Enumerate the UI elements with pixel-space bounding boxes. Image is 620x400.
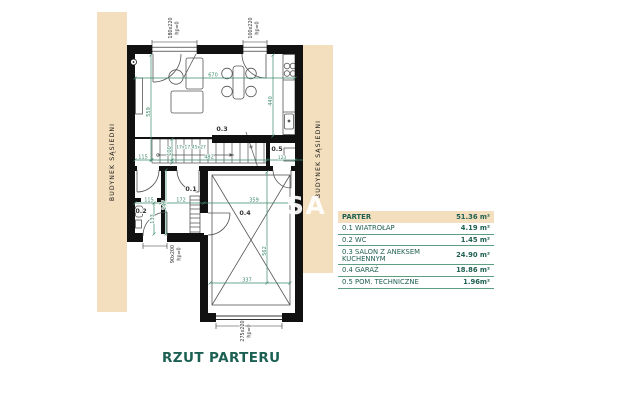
stair-flight-lower — [190, 196, 200, 234]
door-90-label: 90x200 — [170, 245, 176, 263]
kitchen-divider — [283, 80, 295, 112]
garage-275-label: 275x220 — [240, 320, 246, 341]
garage-275-hp: hp=0 — [247, 324, 253, 337]
room-label-0-3: 0.3 — [216, 125, 227, 133]
dim-562: 562 — [262, 246, 268, 256]
wall-wc — [135, 198, 141, 202]
window-180-label: 180x220 — [168, 17, 174, 38]
dim-559: 559 — [146, 107, 152, 117]
windows — [152, 45, 282, 320]
wall-bottom-left — [127, 233, 143, 242]
plan-title: RZUT PARTERU — [162, 350, 281, 366]
garage-door-panel — [216, 316, 282, 320]
room-label-0-1: 0.1 — [185, 185, 196, 193]
dim-359: 359 — [249, 198, 259, 204]
dining-chair — [246, 68, 257, 79]
walls — [127, 45, 303, 322]
boiler-symbol-dot — [133, 61, 135, 63]
dim-337: 337 — [242, 278, 252, 284]
legend-room-name: 0.1 WIATROŁAP — [342, 225, 395, 232]
door-garage-inner — [208, 213, 230, 235]
dim-115-top: 115 — [138, 155, 148, 161]
legend-row: 0.3 SALON Z ANEKSEM KUCHENNYM 24.90 m² — [338, 246, 494, 265]
window-opening — [243, 45, 267, 54]
dim-172: 172 — [176, 198, 186, 204]
legend-room-area: 1.96m² — [463, 279, 490, 286]
neighbor-strip-right: BUDYNEK SĄSIEDNI — [303, 45, 333, 273]
stair-flight-lower-treads — [190, 200, 200, 232]
dim-670: 670 — [208, 73, 218, 79]
garage-cross — [212, 175, 290, 305]
legend-room-area: 18.86 m² — [456, 267, 490, 274]
legend-row: 0.2 WC 1.45 m² — [338, 235, 494, 247]
legend-row: 0.5 POM. TECHNICZNE 1.96m² — [338, 277, 494, 289]
wall-garage-left — [200, 166, 208, 213]
dining-table — [233, 66, 244, 99]
door-90-hp: hp=0 — [177, 247, 183, 260]
sofa-chaise — [186, 58, 203, 89]
room-label-0-5: 0.5 — [271, 145, 282, 153]
wall-right — [295, 54, 303, 322]
window-100-hp: hp=0 — [255, 21, 261, 34]
neighbor-strip-left: BUDYNEK SĄSIEDNI — [97, 12, 127, 312]
wall-garage-bottom — [200, 313, 216, 322]
legend-header-row: PARTER 51.36 m² — [338, 211, 494, 223]
room-label-0-2: 0.2 — [135, 207, 146, 215]
dim-123: 123 — [278, 155, 287, 161]
floor-plan-canvas: BUDYNEK SĄSIEDNI BUDYNEK SĄSIEDNI — [0, 0, 620, 400]
wall-left — [127, 54, 135, 242]
stairs-spec: 17x17,45x27 — [176, 145, 206, 151]
wall-corridor — [291, 166, 303, 171]
legend-room-name: 0.2 WC — [342, 237, 366, 244]
window-180-hp: hp=0 — [175, 21, 181, 34]
legend-room-area: 4.19 m² — [461, 225, 490, 232]
stairs-marker: * — [249, 144, 253, 153]
sink-drain — [288, 120, 290, 122]
legend-room-area: 1.45 m² — [461, 237, 490, 244]
dim-133: 133 — [150, 214, 156, 224]
watermark-text: SA — [286, 191, 326, 220]
dim-115-mid: 115 — [144, 198, 154, 204]
legend-room-name: 0.5 POM. TECHNICZNE — [342, 279, 419, 286]
dim-247: 247 — [162, 200, 168, 210]
window-opening — [152, 45, 197, 54]
legend-header-area: 51.36 m² — [456, 214, 490, 221]
dim-440: 440 — [268, 96, 274, 106]
dim-100: 100 — [167, 146, 173, 156]
legend-table: PARTER 51.36 m² 0.1 WIATROŁAP 4.19 m² 0.… — [338, 211, 494, 289]
legend-row: 0.1 WIATROŁAP 4.19 m² — [338, 223, 494, 235]
door-hall — [137, 170, 159, 192]
floor-plan-page: BUDYNEK SĄSIEDNI BUDYNEK SĄSIEDNI — [0, 0, 620, 400]
wall-salon-rail — [135, 137, 212, 139]
neighbor-left-label: BUDYNEK SĄSIEDNI — [108, 123, 116, 201]
tv-bench — [136, 78, 143, 114]
legend-row: 0.4 GARAŻ 18.86 m² — [338, 265, 494, 277]
room-label-0-4: 0.4 — [239, 209, 251, 217]
neighbor-right-label: BUDYNEK SĄSIEDNI — [314, 120, 322, 198]
wall-corridor — [199, 166, 273, 171]
hob-burner — [284, 71, 290, 77]
sofa-seat — [171, 91, 203, 113]
legend-room-name: 0.4 GARAŻ — [342, 267, 379, 274]
door-garage-tech — [273, 170, 291, 188]
wall-stairs-top — [212, 135, 303, 143]
hob-burner — [284, 63, 290, 69]
wc-sink — [136, 220, 142, 228]
wall-garage-left — [200, 235, 208, 322]
dimension-lines — [134, 40, 304, 329]
wall-bottom-left — [167, 233, 204, 242]
coffee-table — [169, 70, 183, 84]
dim-482: 482 — [204, 155, 214, 161]
wall-garage-bottom — [282, 313, 303, 322]
window-100-label: 100x220 — [248, 17, 254, 38]
legend-header-label: PARTER — [342, 214, 371, 221]
dining-chair — [222, 68, 233, 79]
legend-room-area: 24.90 m² — [456, 252, 490, 259]
dining-chair — [246, 86, 257, 97]
wall-room05 — [266, 143, 270, 167]
dining-chair — [222, 86, 233, 97]
legend-room-name: 0.3 SALON Z ANEKSEM KUCHENNYM — [342, 249, 452, 263]
